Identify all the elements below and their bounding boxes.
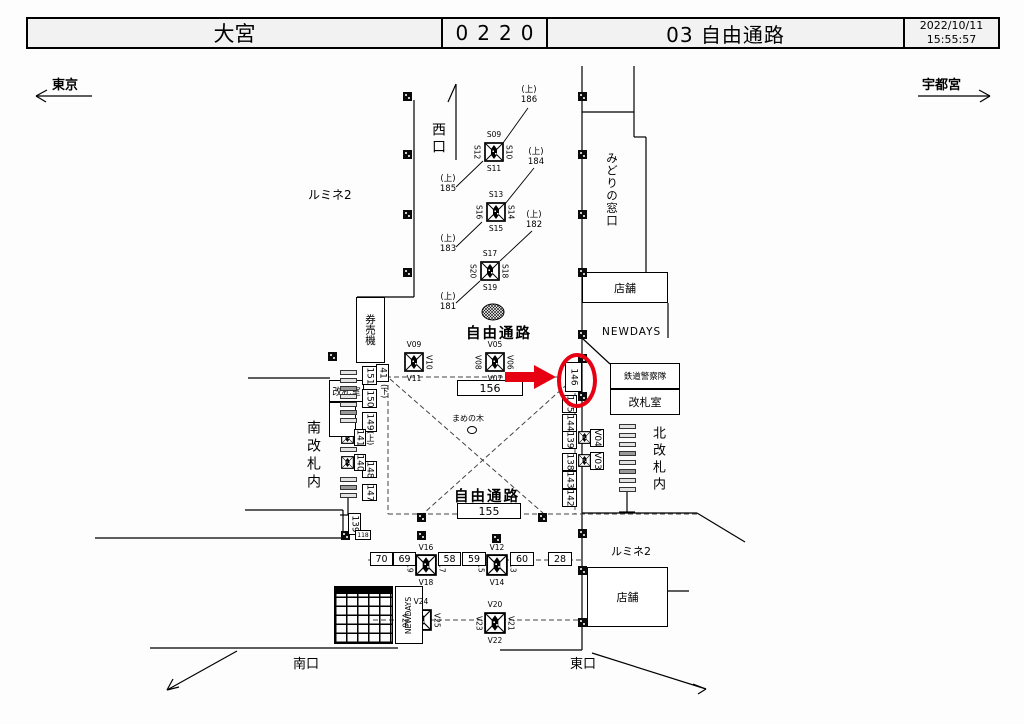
camera-label-v10: V10 (425, 351, 433, 373)
gate-bar (340, 493, 357, 498)
pillar-icon (578, 330, 587, 339)
gate-office-right-label: 改札室 (629, 394, 662, 410)
tree-symbol (482, 304, 504, 320)
camera-icon-s13-cluster[interactable] (487, 203, 505, 221)
location-box-144[interactable]: 144 (562, 414, 577, 432)
up-mark: (上) (365, 431, 376, 445)
gate-bar (619, 469, 636, 474)
camera-icon-v20-cluster[interactable] (485, 613, 505, 633)
camera-icon-140[interactable] (342, 457, 354, 469)
camera-label-v14: V14 (483, 578, 511, 587)
camera-label-s09: S09 (480, 130, 508, 139)
camera-label-v25: V25 (433, 609, 441, 631)
camera-label-v21: V21 (507, 612, 515, 634)
upper-cam-181: (上)181 (433, 293, 463, 313)
gate-bar (340, 386, 357, 391)
north-gate-inside-label: 北改札内 (648, 426, 667, 494)
location-box-150[interactable]: 150 (362, 389, 377, 408)
gate-bar (619, 487, 636, 492)
location-box-142[interactable]: 142 (562, 489, 577, 507)
camera-label-v20: V20 (481, 600, 509, 609)
camera-label-s19: S19 (476, 283, 504, 292)
location-box-155[interactable]: 155 (457, 503, 521, 519)
camera-icon-s17-cluster[interactable] (481, 262, 499, 280)
camera-icon-v04[interactable] (579, 432, 591, 444)
pillar-icon (538, 513, 547, 522)
south-exit-label: 南口 (293, 653, 319, 672)
camera-icon-v12-cluster[interactable] (487, 555, 507, 575)
gate-bar (340, 418, 357, 423)
shop-bottom: 店舗 (587, 567, 668, 627)
camera-label-v26: V26 (401, 609, 409, 631)
south-gate-inside-label: 南改札内 (303, 420, 323, 492)
location-box-59[interactable]: 59 (462, 552, 486, 566)
camera-label-v18: V18 (412, 578, 440, 587)
pillar-icon (328, 352, 337, 361)
camera-label-box-v04[interactable]: V04 (590, 429, 604, 447)
upper-cam-184: (上)184 (521, 148, 551, 168)
location-box-138[interactable]: 138 (562, 453, 577, 471)
upper-cam-186: (上)186 (514, 86, 544, 106)
camera-icon-v09-cluster[interactable] (405, 353, 423, 371)
gate-bar (340, 370, 357, 375)
pillar-icon (578, 210, 587, 219)
gate-bar (340, 402, 357, 407)
camera-label-box-v03[interactable]: V03 (590, 452, 604, 470)
mamenoki-label: まめの木 (452, 413, 484, 424)
highlight-circle-icon (557, 353, 597, 408)
location-box-70[interactable]: 70 (370, 552, 393, 566)
mamenoki-spot (468, 427, 477, 434)
location-box-58[interactable]: 58 (438, 552, 461, 566)
railway-police-room: 鉄道警察隊 (610, 363, 680, 389)
camera-icon-v03[interactable] (579, 455, 591, 467)
pillar-icon (403, 268, 412, 277)
pillar-icon (403, 92, 412, 101)
pillar-icon (578, 566, 587, 575)
location-box-139[interactable]: 139 (562, 431, 577, 449)
gate-bar (619, 478, 636, 483)
location-box-141[interactable]: 141 (354, 429, 366, 446)
gate-bar (340, 394, 357, 399)
pillar-icon (578, 268, 587, 277)
location-box-143[interactable]: 143 (562, 471, 577, 489)
camera-label-s11: S11 (480, 164, 508, 173)
pillar-icon (578, 92, 587, 101)
camera-label-v12: V12 (483, 543, 511, 552)
west-exit-label: 西口 (428, 122, 448, 156)
camera-label-s10: S10 (505, 141, 513, 163)
location-box-147[interactable]: 147 (362, 484, 377, 501)
pillar-icon (578, 150, 587, 159)
gate-bar (340, 447, 357, 452)
camera-label-v24: V24 (407, 597, 435, 606)
station-map-screen: 大宮 0220 03 自由通路 2022/10/11 15:55:57 東京 宇… (0, 0, 1024, 724)
gate-bar (340, 410, 357, 415)
camera-label-s13: S13 (482, 190, 510, 199)
location-box-140[interactable]: 140 (354, 454, 366, 471)
camera-label-s20: S20 (469, 260, 477, 282)
pillar-icon (492, 534, 501, 543)
gate-bar (619, 460, 636, 465)
gate-bar (619, 424, 636, 429)
camera-label-s17: S17 (476, 249, 504, 258)
camera-icon-s09-cluster[interactable] (485, 143, 503, 161)
pillar-icon (578, 529, 587, 538)
location-box-28[interactable]: 28 (548, 552, 572, 566)
camera-label-v09: V09 (400, 340, 428, 349)
location-box-156[interactable]: 156 (457, 380, 523, 396)
newdays-right-label: NEWDAYS (602, 326, 661, 338)
pillar-icon (403, 150, 412, 159)
gate-bar (619, 433, 636, 438)
camera-label-s15: S15 (482, 224, 510, 233)
upper-cam-182: (上)182 (519, 211, 549, 231)
railway-police-label: 鉄道警察隊 (624, 370, 667, 382)
ticket-machines-label: 券売機 (363, 314, 378, 346)
midori-madoguchi-label: みどりの窓口 (604, 152, 620, 227)
camera-label-v22: V22 (481, 636, 509, 645)
shop-right: 店舗 (582, 272, 668, 303)
camera-icon-v05-cluster[interactable] (486, 353, 504, 371)
camera-label-s14: S14 (507, 201, 515, 223)
gate-bar (619, 451, 636, 456)
location-box-69[interactable]: 69 (393, 552, 416, 566)
camera-label-v16: V16 (412, 543, 440, 552)
pillar-icon (417, 531, 426, 540)
gate-bar (340, 477, 357, 482)
shop-right-label: 店舗 (614, 280, 636, 296)
gate-bar (340, 378, 357, 383)
camera-label-v08: V08 (474, 351, 482, 373)
camera-label-v11: V11 (400, 374, 428, 383)
gate-bar (619, 442, 636, 447)
location-box-151[interactable]: 151 (362, 366, 377, 385)
gate-office-right: 改札室 (610, 389, 680, 415)
lumine2-top-label: ルミネ2 (308, 186, 352, 203)
down-mark: (下) (379, 384, 390, 398)
camera-label-v23: V23 (475, 612, 483, 634)
camera-label-v05: V05 (481, 340, 509, 349)
pillar-icon (417, 513, 426, 522)
stairs-block (334, 586, 393, 644)
upper-cam-183: (上)183 (433, 235, 463, 255)
camera-label-s18: S18 (501, 260, 509, 282)
camera-label-s12: S12 (473, 141, 481, 163)
lumine2-bottom-label: ルミネ2 (611, 543, 651, 559)
location-box-41[interactable]: 41 (376, 364, 389, 382)
location-box-118[interactable]: 118 (355, 530, 371, 540)
upper-cam-185: (上)185 (433, 175, 463, 195)
gate-bar (340, 485, 357, 490)
shop-bottom-label: 店舗 (617, 589, 639, 605)
camera-icon-v16-cluster[interactable] (416, 555, 436, 575)
location-box-60[interactable]: 60 (510, 552, 534, 566)
ticket-machine-room: 券売機 (356, 297, 385, 363)
pillar-icon (403, 210, 412, 219)
east-exit-label: 東口 (570, 653, 596, 672)
camera-label-s16: S16 (475, 201, 483, 223)
pillar-icon (578, 618, 587, 627)
camera-label-v06: V06 (506, 351, 514, 373)
